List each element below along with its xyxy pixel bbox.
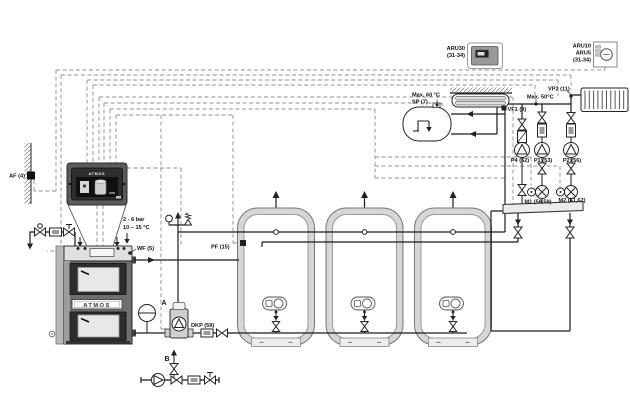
pressure-gauge-icon — [166, 215, 173, 222]
cable-panel-right — [127, 168, 181, 245]
tank3-tap — [451, 230, 456, 235]
dhw-sensor-label: SP (7) — [412, 100, 428, 106]
p2-filter-icon — [567, 124, 576, 137]
room-unit-aru10: ARU10 ARU5 (31-34) — [573, 42, 617, 67]
cw-valve-icon — [35, 228, 46, 236]
pressure-range-label: 2 - 6 bar — [123, 217, 145, 223]
heating-station — [502, 99, 584, 238]
aru5-label: ARU5 — [576, 51, 591, 57]
b-valve-icon — [171, 376, 182, 384]
buffer-tank-3 — [415, 191, 492, 347]
aru10-label: ARU10 — [573, 44, 591, 50]
circuit2-return — [491, 211, 570, 331]
flow-sensor2-label: VP2 (11) — [548, 87, 570, 93]
return1-valve-icon — [514, 227, 522, 238]
dhw-sensor-icon — [436, 104, 439, 107]
b-shutoff-icon — [205, 373, 216, 385]
b-filter-icon — [188, 376, 200, 384]
buffer-tanks — [238, 191, 492, 347]
p2-valve-icon — [567, 113, 575, 124]
return-valve-icon — [217, 329, 228, 337]
p1-lower-valve-icon — [538, 163, 546, 174]
mixer1-label: M1 (58,59) — [524, 200, 551, 206]
pump2-label: P2 (56) — [563, 158, 581, 164]
pump4-icon — [515, 143, 530, 158]
p2-lower-valve-icon — [567, 163, 575, 174]
aru10-terminals: (31-34) — [573, 58, 591, 64]
buffer-sensor-icon — [240, 240, 246, 246]
max50-label: Max. 50°C — [527, 95, 554, 101]
outdoor-sensor-label: AF (4) — [9, 174, 25, 180]
buffer-sensor-label: PF (15) — [211, 245, 230, 251]
hx-wall-hatch — [450, 88, 512, 94]
cable-left-2 — [47, 75, 61, 251]
outdoor-sensor-icon — [27, 172, 35, 180]
point-b-label: B — [164, 356, 169, 363]
b-pump-icon — [152, 374, 165, 387]
wood-boiler: ATMOS — [49, 246, 136, 345]
aru30-label: ARU30 — [447, 46, 465, 52]
schematic-page: AF (4) ATMOS ATMOS — [0, 0, 630, 420]
return-filter-icon — [201, 329, 213, 337]
dhw-tank-icon — [403, 107, 451, 141]
boiler-sensor-label: WF (5) — [137, 246, 154, 252]
boiler-flue — [56, 246, 64, 344]
radiator — [567, 88, 628, 112]
aru30-terminals: (31-34) — [447, 53, 465, 59]
point-b-assembly — [152, 364, 216, 387]
max50-sensor-icon — [534, 102, 537, 105]
boiler-base — [66, 341, 130, 345]
pump1-label: P1 (53) — [534, 158, 552, 164]
buffer-tank-1 — [238, 191, 315, 347]
p1-filter-icon — [538, 124, 547, 137]
pump2-icon — [564, 143, 579, 158]
flow-sensor1-label: VF1 (9) — [508, 107, 527, 113]
tank2-tap — [362, 230, 367, 235]
mixer2-label: M2 (61,62) — [558, 198, 585, 204]
mixing-valve1-icon — [528, 186, 549, 199]
boiler-pump-label: DKP (59) — [191, 323, 214, 329]
safety-valve-icon — [185, 220, 192, 226]
cable-bus-7 — [110, 109, 560, 188]
heating-schematic: AF (4) ATMOS ATMOS — [0, 0, 630, 420]
temp-range-label: 10 – 15 °C — [123, 225, 150, 231]
boiler-display-slot — [90, 249, 114, 257]
mount-line-left — [68, 205, 87, 247]
room-unit-aru30: ARU30 (31-34) — [447, 43, 503, 69]
radiator-icon — [581, 88, 628, 112]
outdoor-wall: AF (4) — [9, 143, 35, 204]
cable-panel-comb — [87, 80, 116, 163]
cable-bus-6 — [104, 103, 442, 106]
dhw-return-line — [451, 107, 497, 134]
cw-shutoff-icon — [64, 225, 75, 237]
laddomat-unit — [165, 303, 193, 339]
buffer-tank-2 — [326, 191, 403, 347]
b-drop-valve-icon — [170, 364, 178, 375]
max60-label: Max. 60 °C — [412, 93, 440, 99]
panel-brand: ATMOS — [89, 172, 106, 176]
pump4-label: P4 (62) — [511, 158, 529, 164]
flow-sensor1-icon — [502, 106, 507, 111]
cable-bus-1 — [56, 68, 605, 71]
p4-lower-valve-icon — [518, 185, 526, 196]
point-a-label: A — [161, 300, 166, 307]
boiler-sensor-icon — [128, 251, 132, 255]
cable-af — [34, 70, 56, 191]
p1-valve-icon — [538, 112, 546, 123]
cable-panel-to-boiler — [97, 205, 103, 246]
cable-dkp — [161, 115, 167, 329]
tank1-tap — [274, 230, 279, 235]
return2-valve-icon — [566, 227, 574, 238]
flow-sensor2-icon — [569, 94, 572, 97]
boiler-brand: ATMOS — [83, 303, 111, 309]
cw-filter-icon — [50, 228, 62, 236]
p4-valve-icon — [518, 119, 526, 130]
pump1-icon — [535, 143, 550, 158]
